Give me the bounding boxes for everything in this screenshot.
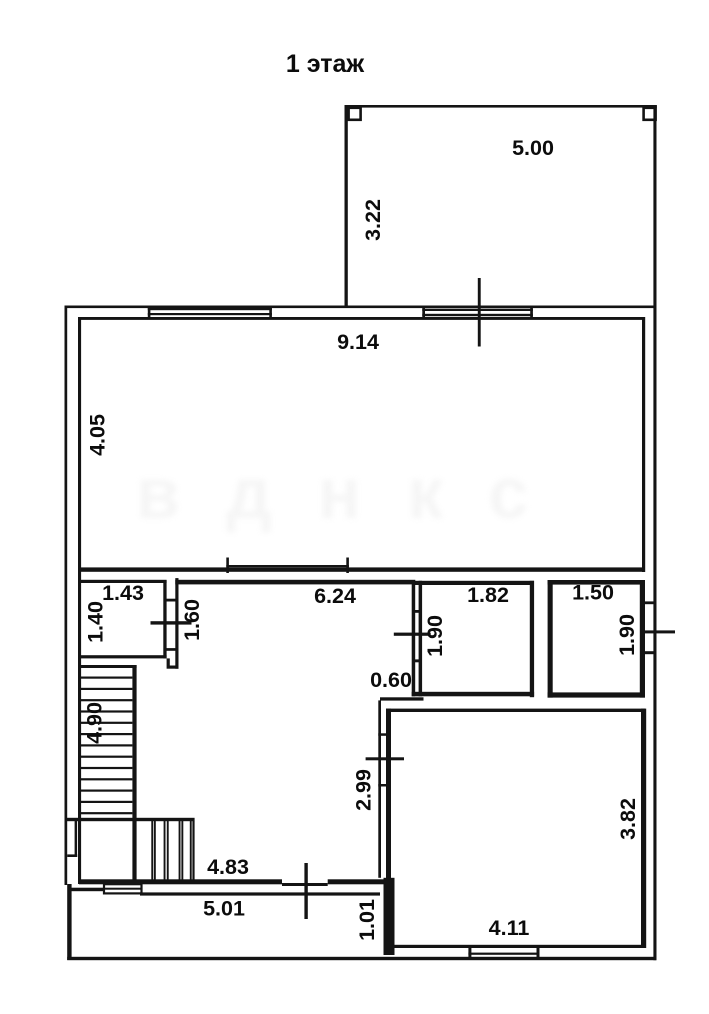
- svg-text:3.22: 3.22: [361, 199, 385, 241]
- svg-text:6.24: 6.24: [314, 584, 356, 608]
- svg-text:5.01: 5.01: [203, 897, 245, 921]
- svg-text:1.40: 1.40: [84, 601, 108, 643]
- svg-text:3.82: 3.82: [616, 798, 640, 840]
- svg-text:4.11: 4.11: [489, 916, 530, 940]
- svg-text:вднкс: вднкс: [136, 454, 575, 534]
- svg-text:1 этаж: 1 этаж: [286, 50, 364, 78]
- svg-text:4.05: 4.05: [85, 414, 109, 456]
- svg-text:5.00: 5.00: [512, 136, 554, 160]
- svg-text:0.60: 0.60: [370, 668, 412, 692]
- svg-text:1.90: 1.90: [423, 615, 447, 657]
- svg-text:9.14: 9.14: [337, 330, 379, 354]
- svg-text:1.50: 1.50: [572, 581, 614, 605]
- svg-text:1.43: 1.43: [102, 581, 144, 605]
- svg-text:1.60: 1.60: [180, 599, 204, 641]
- svg-text:4.90: 4.90: [83, 702, 107, 744]
- svg-text:1.90: 1.90: [615, 614, 639, 656]
- svg-text:1.82: 1.82: [467, 583, 509, 607]
- svg-text:2.99: 2.99: [352, 769, 376, 811]
- svg-text:4.83: 4.83: [207, 855, 249, 879]
- svg-text:1.01: 1.01: [355, 899, 379, 941]
